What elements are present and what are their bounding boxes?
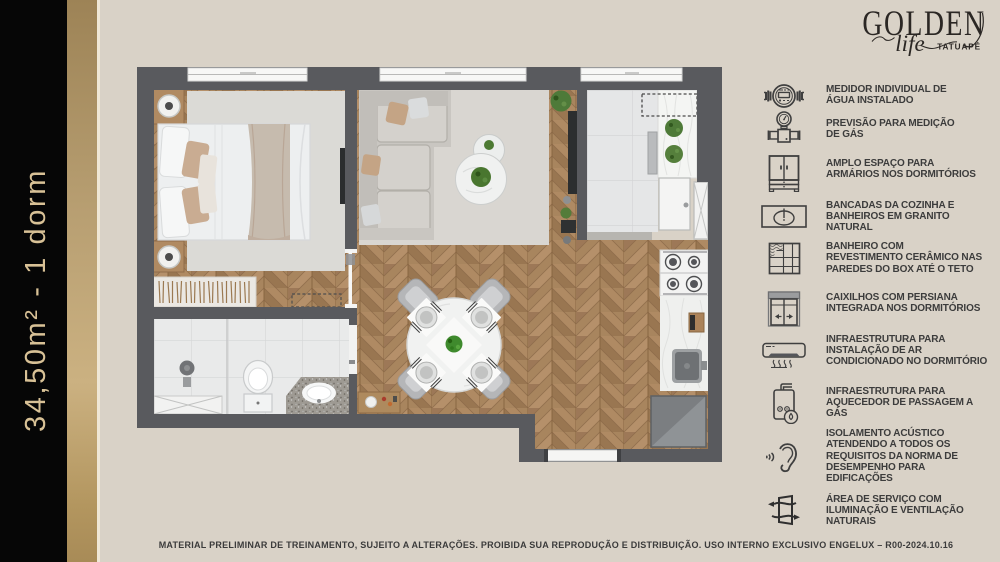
svg-text:life: life bbox=[895, 31, 924, 56]
svg-text:TATUAPÉ: TATUAPÉ bbox=[937, 42, 981, 52]
